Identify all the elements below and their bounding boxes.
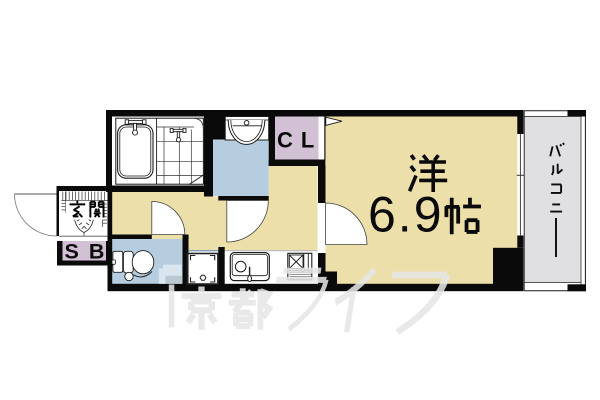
svg-text:CL: CL <box>277 127 322 152</box>
svg-text:6.9: 6.9 <box>368 187 444 243</box>
svg-text:SB: SB <box>65 239 115 263</box>
